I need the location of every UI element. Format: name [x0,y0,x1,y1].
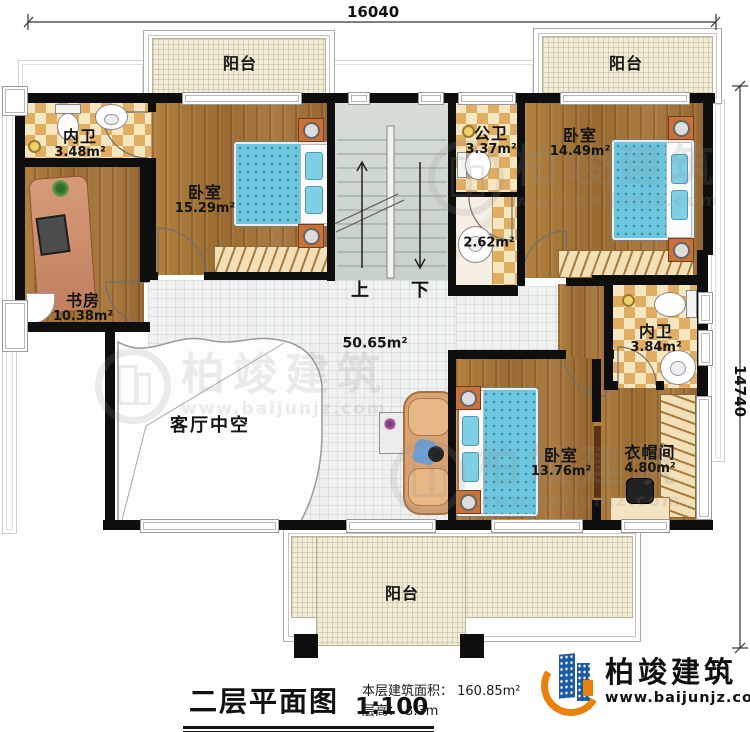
toilet-icon [654,292,686,317]
wall [327,93,335,281]
window [560,92,690,105]
nightstand-icon [298,118,324,142]
wall [592,500,601,522]
wall [703,93,713,255]
window [491,519,583,533]
window [2,300,28,352]
flowers-icon [384,418,396,430]
stairs [333,101,452,283]
wall [15,93,25,332]
wall [448,350,456,522]
stairs-up-label: 上 [351,281,371,301]
balcony-post [294,634,318,658]
wall [656,381,664,390]
room-label-balcony-top-left: 阳台 [223,55,257,73]
room-label-void: 客厅中空 [170,416,250,436]
wall [517,278,525,286]
window [418,92,444,105]
stairs-down-label: 下 [411,281,431,301]
door-leaf [594,426,601,498]
wall [592,275,708,285]
window [2,86,28,116]
window [621,519,670,533]
floor-plan: 柏竣建筑 www.baijunjz.com 柏竣建筑 www.baijunjz.… [0,0,750,732]
room-label-balcony-top-right: 阳台 [609,55,643,73]
wall [448,285,518,296]
room-label-balcony-bottom: 阳台 [385,585,419,603]
window [140,519,279,533]
plan-area-line: 本层建筑面积： 160.85m² [362,682,521,702]
chair-icon [626,478,654,504]
window [698,330,713,366]
dimension-top: 16040 [347,3,399,21]
balcony-post [460,634,484,658]
room-label-bedroom-top-left: 卧室15.29m² [175,184,235,216]
dimension-right: 14740 [731,365,749,417]
window [346,519,436,533]
wall [148,93,156,112]
toilet-icon [686,290,697,318]
nightstand-icon [455,386,481,410]
wall [105,330,115,530]
plant-icon [52,180,69,197]
wall [604,381,618,390]
room-label-bedroom-top-right: 卧室14.49m² [550,127,610,159]
wall [148,158,156,280]
sofa-cushion-icon [408,398,450,436]
wall [604,285,613,388]
person-head-icon [428,446,444,462]
window [696,396,712,520]
light-icon [28,140,41,153]
wall [517,93,525,278]
bed-icon [234,142,330,226]
wall [697,250,708,398]
room-label-cloakroom: 衣帽间4.80m² [624,444,675,476]
wall [448,93,456,287]
eave-line [711,100,725,462]
window [348,92,370,105]
room-label-wash-area: 2.62m² [463,237,514,252]
window [458,92,516,105]
light-icon [622,294,635,307]
wall [606,350,614,359]
room-label-hall-area: 50.65m² [342,334,407,353]
bed-icon [612,140,694,240]
plan-height-line: 层高： 3.3m [362,702,521,722]
brand-logo-icon [543,654,599,716]
wall [148,272,158,280]
window [182,92,302,105]
sink-icon [660,350,696,385]
room-label-bath-public: 公卫3.37m² [465,125,516,157]
nightstand-icon [298,224,324,248]
plan-info: 本层建筑面积： 160.85m² 层高： 3.3m [362,682,521,722]
nightstand-icon [668,238,694,262]
room-label-bath-ensuite-right: 内卫3.84m² [630,323,681,355]
plan-title: 二层平面图 [189,680,339,720]
sink-icon [95,104,128,130]
room-label-study: 书房10.38m² [53,292,113,324]
room-label-bath-ensuite-left: 内卫3.48m² [54,128,105,160]
nightstand-icon [455,490,481,514]
wall [448,350,566,359]
wardrobe-icon [214,246,330,274]
wall [454,192,518,197]
room-label-bedroom-bottom: 卧室13.76m² [531,447,591,479]
nightstand-icon [668,116,694,140]
sofa-cushion-icon [408,468,450,506]
wall [592,359,601,422]
brand-url: www.baijunjz.com [605,690,750,706]
window [698,292,713,324]
wall [204,272,335,280]
brand-block: 柏竣建筑 www.baijunjz.com [543,652,743,722]
brand-name: 柏竣建筑 [605,658,750,687]
monitor-icon [36,214,71,256]
